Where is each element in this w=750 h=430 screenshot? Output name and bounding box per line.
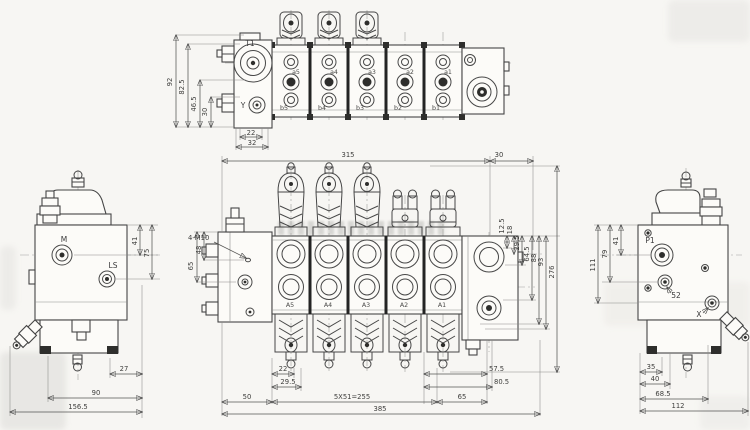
port-label-m: M (61, 235, 67, 244)
dim-276: 276 (548, 266, 556, 279)
inlet-block-front: 4-M10 (188, 208, 272, 322)
port-label-b1: b1 (432, 105, 440, 112)
dim-65-left: 65 (187, 262, 195, 271)
dim-50: 50 (243, 393, 252, 401)
port-label-A4: A4 (324, 302, 332, 309)
dim-30: 30 (201, 108, 209, 117)
dim-29-5-bottom: 29.5 (280, 378, 295, 386)
port-label-A1: A1 (438, 302, 446, 309)
valve-body-left: M LS (29, 225, 127, 320)
dim-pitch-5x51: 5X51=255 (334, 393, 370, 401)
dim-41: 41 (131, 237, 139, 246)
port-label-A2: A2 (400, 302, 408, 309)
dim-35: 35 (647, 363, 656, 371)
right-side-view: P1 52 X 41 79 111 35 40 68. (589, 168, 750, 416)
dim-93: 93 (537, 258, 545, 267)
scanned-valve-drawing: a5 a4 a3 a2 a1 b5 b4 b3 b2 b1 T1 Y (0, 0, 750, 430)
angled-fitting-right (718, 310, 750, 344)
dim-12-5: 12.5 (498, 218, 506, 233)
valve-body-right: P1 52 X (638, 225, 728, 320)
port-label-a1: a1 (444, 69, 452, 76)
dim-40: 40 (651, 375, 660, 383)
thread-callout-4-m10: 4-M10 (188, 234, 209, 242)
mount-bracket-right (647, 320, 721, 371)
relief-valve-right (652, 172, 722, 225)
dim-46-5: 46.5 (190, 96, 198, 111)
port-label-a5: a5 (292, 69, 300, 76)
relief-valve-left (37, 171, 111, 225)
port-label-a2: a2 (406, 69, 414, 76)
dim-385: 385 (374, 405, 387, 413)
port-label-t1: T1 (244, 39, 255, 48)
dim-82-5: 82.5 (178, 79, 186, 94)
dim-48: 48 (195, 246, 203, 255)
dim-80-5: 80.5 (494, 378, 509, 386)
angled-fitting-left (9, 318, 43, 352)
port-label-52: 52 (671, 291, 681, 300)
dim-315: 315 (342, 151, 355, 159)
dim-111: 111 (589, 259, 597, 272)
port-label-b2: b2 (394, 105, 402, 112)
port-label-b4: b4 (318, 105, 326, 112)
inlet-block-plan: T1 Y (217, 33, 272, 128)
port-label-a4: a4 (330, 69, 338, 76)
dim-27: 27 (120, 365, 129, 373)
dim-22-bottom: 22 (279, 365, 288, 373)
port-label-y: Y (240, 101, 246, 110)
dim-29-5-right: 29.5 (513, 235, 521, 250)
dim-90: 90 (92, 389, 101, 397)
dim-112: 112 (672, 402, 685, 410)
dim-92: 92 (166, 78, 174, 87)
left-side-view: M LS 41 75 27 90 156.5 (9, 170, 160, 418)
dim-75: 75 (143, 249, 151, 258)
dim-57-5: 57.5 (489, 365, 504, 373)
dim-22: 22 (247, 129, 256, 137)
port-label-b5: b5 (280, 105, 288, 112)
dim-41-right: 41 (612, 237, 620, 246)
dim-30-top: 30 (495, 151, 504, 159)
dim-68-5: 68.5 (655, 390, 670, 398)
port-label-A3: A3 (362, 302, 370, 309)
dim-18: 18 (506, 226, 514, 235)
dim-32: 32 (248, 139, 257, 147)
mount-bracket-left (40, 320, 118, 371)
port-label-a3: a3 (368, 69, 376, 76)
dim-79: 79 (601, 250, 609, 259)
port-label-ls: LS (109, 261, 118, 270)
end-block-plan (462, 48, 509, 114)
dim-65-bottom: 65 (458, 393, 467, 401)
port-label-A5: A5 (286, 302, 294, 309)
top-view: a5 a4 a3 a2 a1 b5 b4 b3 b2 b1 T1 Y (166, 10, 512, 150)
dim-156-5: 156.5 (68, 403, 87, 411)
front-view: 4-M10 A5 A4 A3 A2 A1 (187, 151, 560, 416)
port-label-x: X (696, 310, 701, 319)
port-label-p1: P1 (645, 236, 655, 245)
port-label-b3: b3 (356, 105, 364, 112)
